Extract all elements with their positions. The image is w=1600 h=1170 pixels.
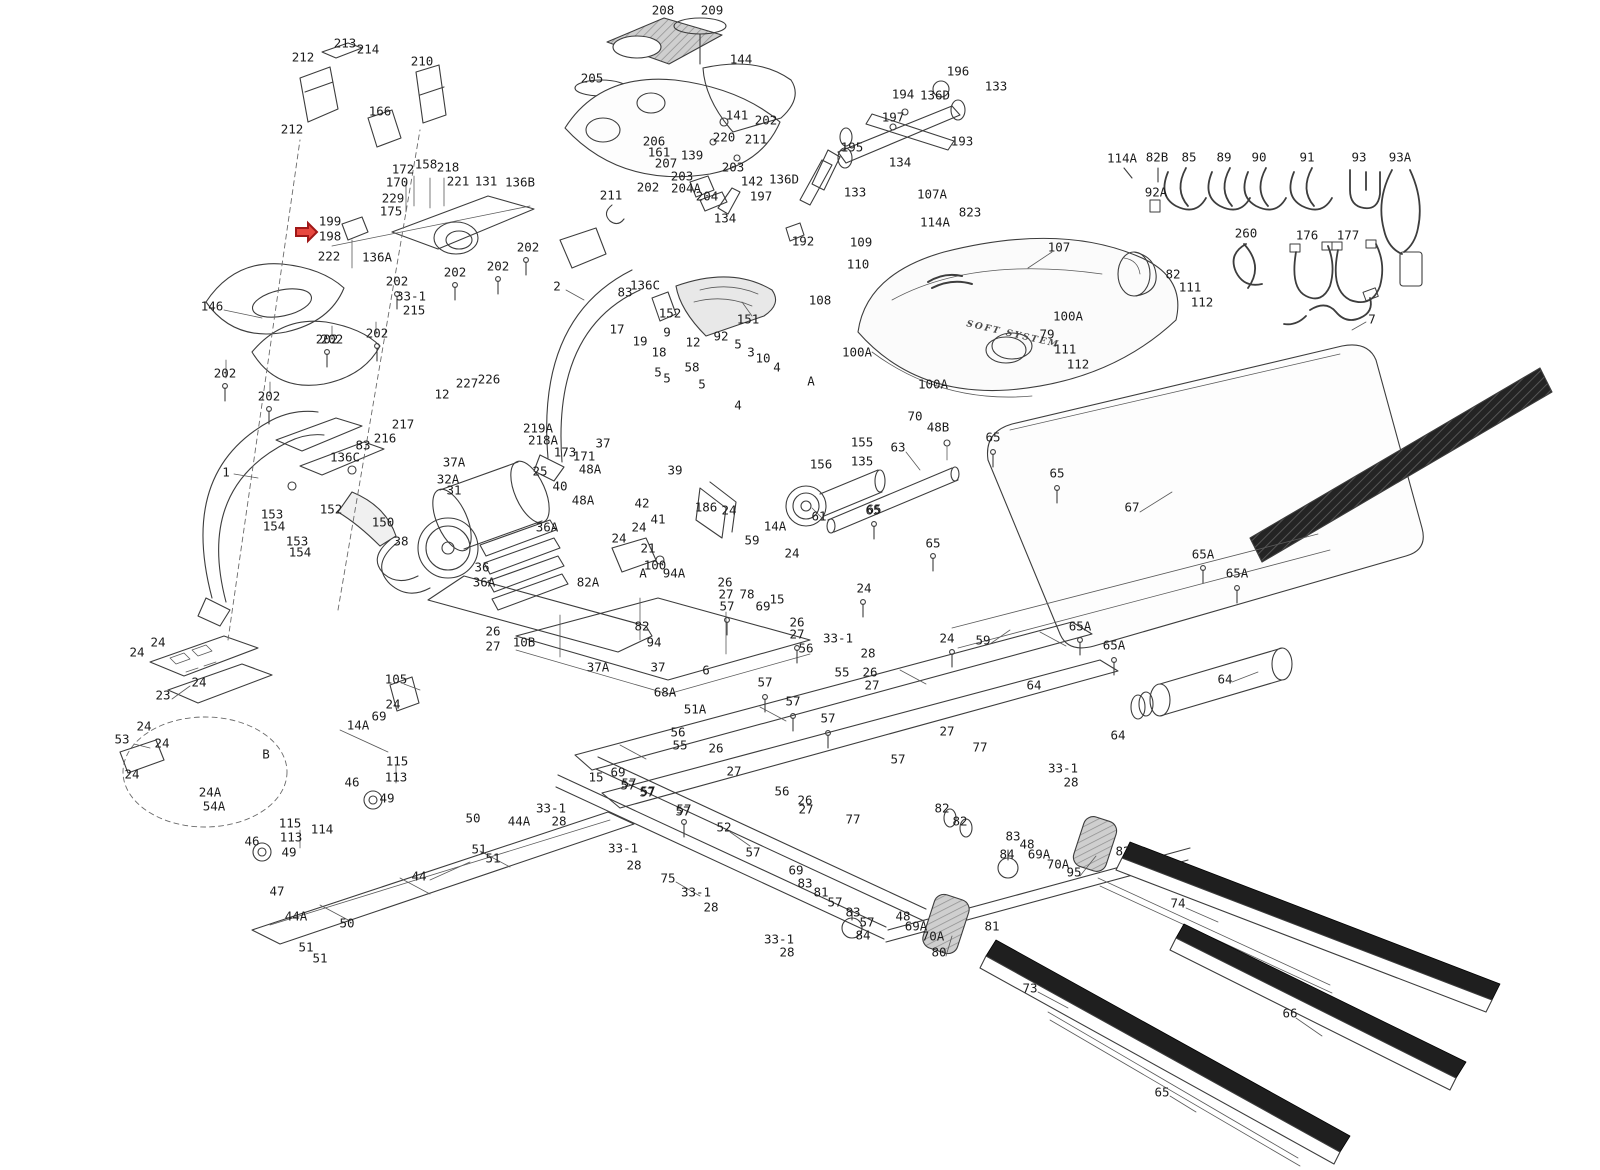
part-label-151: 151 (737, 312, 760, 327)
part-label-55: 55 (672, 738, 687, 753)
part-label-59: 59 (975, 633, 990, 648)
part-label-48B: 48B (927, 420, 950, 435)
part-label-37A: 37A (443, 455, 466, 470)
part-label-170: 170 (386, 175, 409, 190)
part-label-17: 17 (609, 322, 624, 337)
part-label-51A: 51A (684, 702, 707, 717)
part-label-82: 82 (1115, 844, 1130, 859)
part-label-55: 55 (834, 665, 849, 680)
part-label-6: 6 (702, 663, 710, 678)
part-label-B: B (262, 747, 270, 762)
part-label-107A: 107A (917, 187, 948, 202)
part-label-4: 4 (773, 360, 781, 375)
part-label-50: 50 (465, 811, 480, 826)
part-label-208: 208 (652, 3, 675, 18)
part-label-197: 197 (882, 110, 905, 125)
part-label-15: 15 (588, 770, 603, 785)
part-label-54A: 54A (203, 799, 226, 814)
part-label-202: 202 (214, 366, 237, 381)
part-label-27: 27 (485, 639, 500, 654)
part-label-156: 156 (810, 457, 833, 472)
part-label-57: 57 (639, 785, 654, 800)
part-label-26: 26 (485, 624, 500, 639)
part-label-24: 24 (611, 531, 626, 546)
part-label-105: 105 (385, 672, 408, 687)
part-label-57: 57 (719, 599, 734, 614)
part-label-65: 65 (1049, 466, 1064, 481)
part-label-82A: 82A (577, 575, 600, 590)
walking-deck (944, 345, 1552, 648)
part-label-93A: 93A (1389, 150, 1412, 165)
part-label-152: 152 (659, 306, 682, 321)
part-label-63: 63 (890, 440, 905, 455)
part-label-31: 31 (446, 483, 461, 498)
part-label-136C: 136C (330, 450, 360, 465)
part-label-21: 21 (640, 541, 655, 556)
part-label-92: 92 (713, 329, 728, 344)
part-label-24: 24 (385, 697, 400, 712)
part-label-65: 65 (925, 536, 940, 551)
part-label-186: 186 (695, 500, 718, 515)
part-label-193: 193 (951, 134, 974, 149)
part-label-24: 24 (721, 503, 736, 518)
part-label-24: 24 (856, 581, 871, 596)
part-label-27: 27 (798, 802, 813, 817)
part-label-14A: 14A (764, 519, 787, 534)
part-label-52: 52 (716, 820, 731, 835)
part-label-40: 40 (552, 479, 567, 494)
part-label-202: 202 (517, 240, 540, 255)
part-label-3: 3 (747, 345, 755, 360)
part-label-69: 69 (371, 709, 386, 724)
part-label-115: 115 (386, 754, 409, 769)
part-label-83: 83 (1005, 829, 1020, 844)
part-label-210: 210 (411, 54, 434, 69)
part-label-48A: 48A (572, 493, 595, 508)
part-label-12: 12 (685, 335, 700, 350)
part-label-227: 227 (456, 376, 479, 391)
part-label-47: 47 (269, 884, 284, 899)
part-label-215: 215 (403, 303, 426, 318)
motor-hood (858, 238, 1178, 397)
part-label-44: 44 (411, 869, 426, 884)
part-label-74: 74 (1170, 896, 1185, 911)
part-label-70A: 70A (922, 929, 945, 944)
part-label-131: 131 (475, 174, 498, 189)
part-label-202: 202 (444, 265, 467, 280)
part-label-28: 28 (1063, 775, 1078, 790)
part-label-10: 10 (755, 351, 770, 366)
part-label-27: 27 (864, 678, 879, 693)
part-label-24: 24 (129, 645, 144, 660)
part-label-28: 28 (860, 646, 875, 661)
part-label-24: 24 (154, 736, 169, 751)
part-label-28: 28 (626, 858, 641, 873)
part-label-49: 49 (281, 845, 296, 860)
part-label-51: 51 (485, 851, 500, 866)
part-label-212: 212 (281, 122, 304, 137)
part-label-24: 24 (939, 631, 954, 646)
part-label-58: 58 (684, 360, 699, 375)
part-label-133: 133 (844, 185, 867, 200)
part-label-5: 5 (698, 377, 706, 392)
part-label-77: 77 (845, 812, 860, 827)
part-label-94: 94 (646, 635, 661, 650)
part-label-82B: 82B (1146, 150, 1169, 165)
part-label-56: 56 (774, 784, 789, 799)
part-label-33-1: 33-1 (823, 631, 853, 646)
part-label-36A: 36A (536, 520, 559, 535)
part-label-1: 1 (222, 465, 230, 480)
part-label-33-1: 33-1 (681, 885, 711, 900)
part-label-133: 133 (985, 79, 1008, 94)
part-label-37: 37 (650, 660, 665, 675)
part-label-155: 155 (851, 435, 874, 450)
part-label-24: 24 (784, 546, 799, 561)
part-label-202: 202 (386, 274, 409, 289)
part-label-27: 27 (789, 627, 804, 642)
part-label-216: 216 (374, 431, 397, 446)
part-label-112: 112 (1191, 295, 1214, 310)
part-label-218: 218 (437, 160, 460, 175)
part-label-57: 57 (785, 694, 800, 709)
diagram-artwork: SOFT SYSTEM 2132142122121662102082092051… (0, 0, 1600, 1170)
part-label-202: 202 (487, 259, 510, 274)
part-label-89: 89 (1216, 150, 1231, 165)
part-label-38: 38 (393, 534, 408, 549)
part-label-110: 110 (847, 257, 870, 272)
part-label-36: 36 (474, 560, 489, 575)
part-label-7: 7 (1368, 312, 1376, 327)
part-label-158: 158 (415, 157, 438, 172)
part-label-202: 202 (637, 180, 660, 195)
part-label-41: 41 (650, 512, 665, 527)
part-label-136D: 136D (769, 172, 799, 187)
part-label-214: 214 (357, 42, 380, 57)
part-label-205: 205 (581, 71, 604, 86)
parts-diagram: SOFT SYSTEM 2132142122121662102082092051… (0, 0, 1600, 1170)
part-label-209: 209 (701, 3, 724, 18)
part-label-5: 5 (734, 337, 742, 352)
part-label-57: 57 (827, 895, 842, 910)
part-label-83: 83 (845, 905, 860, 920)
part-label-69: 69 (755, 599, 770, 614)
part-label-59: 59 (744, 533, 759, 548)
part-label-81: 81 (984, 919, 999, 934)
part-label-64: 64 (1110, 728, 1125, 743)
part-label-37A: 37A (587, 660, 610, 675)
part-label-44A: 44A (508, 814, 531, 829)
part-label-24A: 24A (199, 785, 222, 800)
part-label-213: 213 (334, 36, 357, 51)
leader-lines (134, 252, 1366, 1112)
part-label-85: 85 (1181, 150, 1196, 165)
part-label-100A: 100A (842, 345, 873, 360)
part-label-80: 80 (931, 945, 946, 960)
part-label-65: 65 (865, 503, 880, 518)
part-label-24: 24 (631, 520, 646, 535)
part-label-44A: 44A (285, 909, 308, 924)
part-label-199: 199 (319, 214, 342, 229)
part-label-217: 217 (392, 417, 415, 432)
part-label-77: 77 (972, 740, 987, 755)
part-label-111: 111 (1179, 280, 1202, 295)
part-label-139: 139 (681, 148, 704, 163)
part-label-61: 61 (811, 509, 826, 524)
part-label-23: 23 (155, 688, 170, 703)
part-label-92A: 92A (1145, 185, 1168, 200)
part-label-212: 212 (292, 50, 315, 65)
part-label-27: 27 (939, 724, 954, 739)
part-label-51: 51 (298, 940, 313, 955)
part-label-70: 70 (907, 409, 922, 424)
part-label-221: 221 (447, 174, 470, 189)
part-label-114A: 114A (1107, 151, 1138, 166)
part-label-150: 150 (372, 515, 395, 530)
part-label-109: 109 (850, 235, 873, 250)
part-label-78: 78 (739, 587, 754, 602)
part-label-27: 27 (726, 764, 741, 779)
part-label-194: 194 (892, 87, 915, 102)
part-label-24: 24 (191, 675, 206, 690)
highlight-arrow-icon (296, 223, 317, 241)
bottom-rails (980, 842, 1500, 1166)
part-label-202: 202 (321, 332, 344, 347)
part-label-37: 37 (595, 436, 610, 451)
part-label-91: 91 (1299, 150, 1314, 165)
part-label-65A: 65A (1103, 638, 1126, 653)
part-label-211: 211 (745, 132, 768, 147)
part-label-177: 177 (1337, 228, 1360, 243)
part-label-84: 84 (855, 928, 870, 943)
part-label-93: 93 (1351, 150, 1366, 165)
part-label-56: 56 (798, 641, 813, 656)
part-label-112: 112 (1067, 357, 1090, 372)
part-label-A: A (639, 566, 647, 581)
part-label-39: 39 (667, 463, 682, 478)
part-label-A: A (807, 374, 815, 389)
part-label-115: 115 (279, 816, 302, 831)
part-label-42: 42 (634, 496, 649, 511)
part-label-176: 176 (1296, 228, 1319, 243)
part-label-57: 57 (620, 778, 635, 793)
part-label-46: 46 (344, 775, 359, 790)
part-label-82: 82 (634, 619, 649, 634)
part-label-134: 134 (889, 155, 912, 170)
part-label-48A: 48A (579, 462, 602, 477)
part-label-57: 57 (890, 752, 905, 767)
part-label-79: 79 (1039, 327, 1054, 342)
part-label-15: 15 (769, 592, 784, 607)
part-label-82: 82 (934, 801, 949, 816)
part-label-260: 260 (1235, 226, 1258, 241)
part-label-202: 202 (258, 389, 281, 404)
part-label-202: 202 (755, 113, 778, 128)
part-label-57: 57 (820, 711, 835, 726)
part-label-24: 24 (136, 719, 151, 734)
part-label-136B: 136B (505, 175, 535, 190)
part-label-81: 81 (813, 885, 828, 900)
part-label-51: 51 (312, 951, 327, 966)
part-label-64: 64 (1026, 678, 1041, 693)
part-label-36A: 36A (473, 575, 496, 590)
part-label-82: 82 (952, 814, 967, 829)
part-label-175: 175 (380, 204, 403, 219)
part-label-111: 111 (1054, 342, 1077, 357)
part-label-204: 204 (696, 189, 719, 204)
part-label-114: 114 (311, 822, 334, 837)
part-label-18: 18 (651, 345, 666, 360)
part-label-823: 823 (959, 205, 982, 220)
part-label-49: 49 (379, 791, 394, 806)
part-label-195: 195 (841, 140, 864, 155)
part-label-141: 141 (726, 108, 749, 123)
part-label-4: 4 (734, 398, 742, 413)
part-label-65: 65 (985, 430, 1000, 445)
part-label-75: 75 (660, 871, 675, 886)
part-label-144: 144 (730, 52, 753, 67)
part-label-202: 202 (366, 326, 389, 341)
part-label-2: 2 (553, 279, 561, 294)
part-label-28: 28 (551, 814, 566, 829)
part-label-136D: 136D (920, 88, 950, 103)
part-label-154: 154 (263, 519, 286, 534)
part-label-25: 25 (532, 464, 547, 479)
part-label-51: 51 (471, 842, 486, 857)
part-label-136C: 136C (630, 278, 660, 293)
console-mount-frame (332, 176, 534, 309)
part-label-90: 90 (1251, 150, 1266, 165)
part-198-bracket (342, 217, 368, 240)
part-label-222: 222 (318, 249, 341, 264)
part-label-33-1: 33-1 (1048, 761, 1078, 776)
part-label-154: 154 (289, 545, 312, 560)
part-label-12: 12 (434, 387, 449, 402)
part-label-65A: 65A (1069, 619, 1092, 634)
part-label-107: 107 (1048, 240, 1071, 255)
part-label-135: 135 (851, 454, 874, 469)
part-label-24: 24 (124, 767, 139, 782)
part-label-5: 5 (654, 365, 662, 380)
part-label-203: 203 (722, 160, 745, 175)
part-label-198: 198 (319, 229, 342, 244)
part-label-9: 9 (663, 325, 671, 340)
incline-parts (842, 809, 1119, 956)
part-label-146: 146 (201, 299, 224, 314)
part-label-114A: 114A (920, 215, 951, 230)
part-label-28: 28 (703, 900, 718, 915)
part-label-83: 83 (797, 876, 812, 891)
part-label-73: 73 (1022, 981, 1037, 996)
part-label-26: 26 (708, 741, 723, 756)
part-label-113: 113 (385, 770, 408, 785)
part-label-53: 53 (114, 732, 129, 747)
part-label-46: 46 (244, 834, 259, 849)
part-label-142: 142 (741, 174, 764, 189)
part-label-28: 28 (779, 945, 794, 960)
part-label-64: 64 (1217, 672, 1232, 687)
part-label-100A: 100A (1053, 309, 1084, 324)
part-label-24: 24 (150, 635, 165, 650)
part-label-192: 192 (792, 234, 815, 249)
part-label-5: 5 (663, 371, 671, 386)
part-label-94A: 94A (663, 566, 686, 581)
part-label-226: 226 (478, 372, 501, 387)
part-label-134: 134 (714, 211, 737, 226)
part-label-152: 152 (320, 502, 343, 517)
part-label-33-1: 33-1 (396, 289, 426, 304)
part-label-33-1: 33-1 (608, 841, 638, 856)
part-label-57: 57 (757, 675, 772, 690)
part-label-67: 67 (1124, 500, 1139, 515)
part-label-19: 19 (632, 334, 647, 349)
part-label-84: 84 (999, 847, 1014, 862)
part-label-57: 57 (675, 804, 690, 819)
part-label-100A: 100A (918, 377, 949, 392)
part-label-166: 166 (369, 104, 392, 119)
part-label-57: 57 (745, 845, 760, 860)
part-label-10B: 10B (513, 635, 536, 650)
part-label-196: 196 (947, 64, 970, 79)
part-label-65A: 65A (1192, 547, 1215, 562)
part-label-50: 50 (339, 916, 354, 931)
part-label-197: 197 (750, 189, 773, 204)
part-label-68A: 68A (654, 685, 677, 700)
part-label-65A: 65A (1226, 566, 1249, 581)
part-label-108: 108 (809, 293, 832, 308)
base-frame (252, 677, 634, 944)
part-label-220: 220 (713, 130, 736, 145)
part-label-136A: 136A (362, 250, 393, 265)
part-label-95: 95 (1066, 865, 1081, 880)
part-label-14A: 14A (347, 718, 370, 733)
part-label-66: 66 (1282, 1006, 1297, 1021)
part-label-65: 65 (1154, 1085, 1169, 1100)
part-label-113: 113 (280, 830, 303, 845)
part-label-83: 83 (617, 285, 632, 300)
part-label-211: 211 (600, 188, 623, 203)
